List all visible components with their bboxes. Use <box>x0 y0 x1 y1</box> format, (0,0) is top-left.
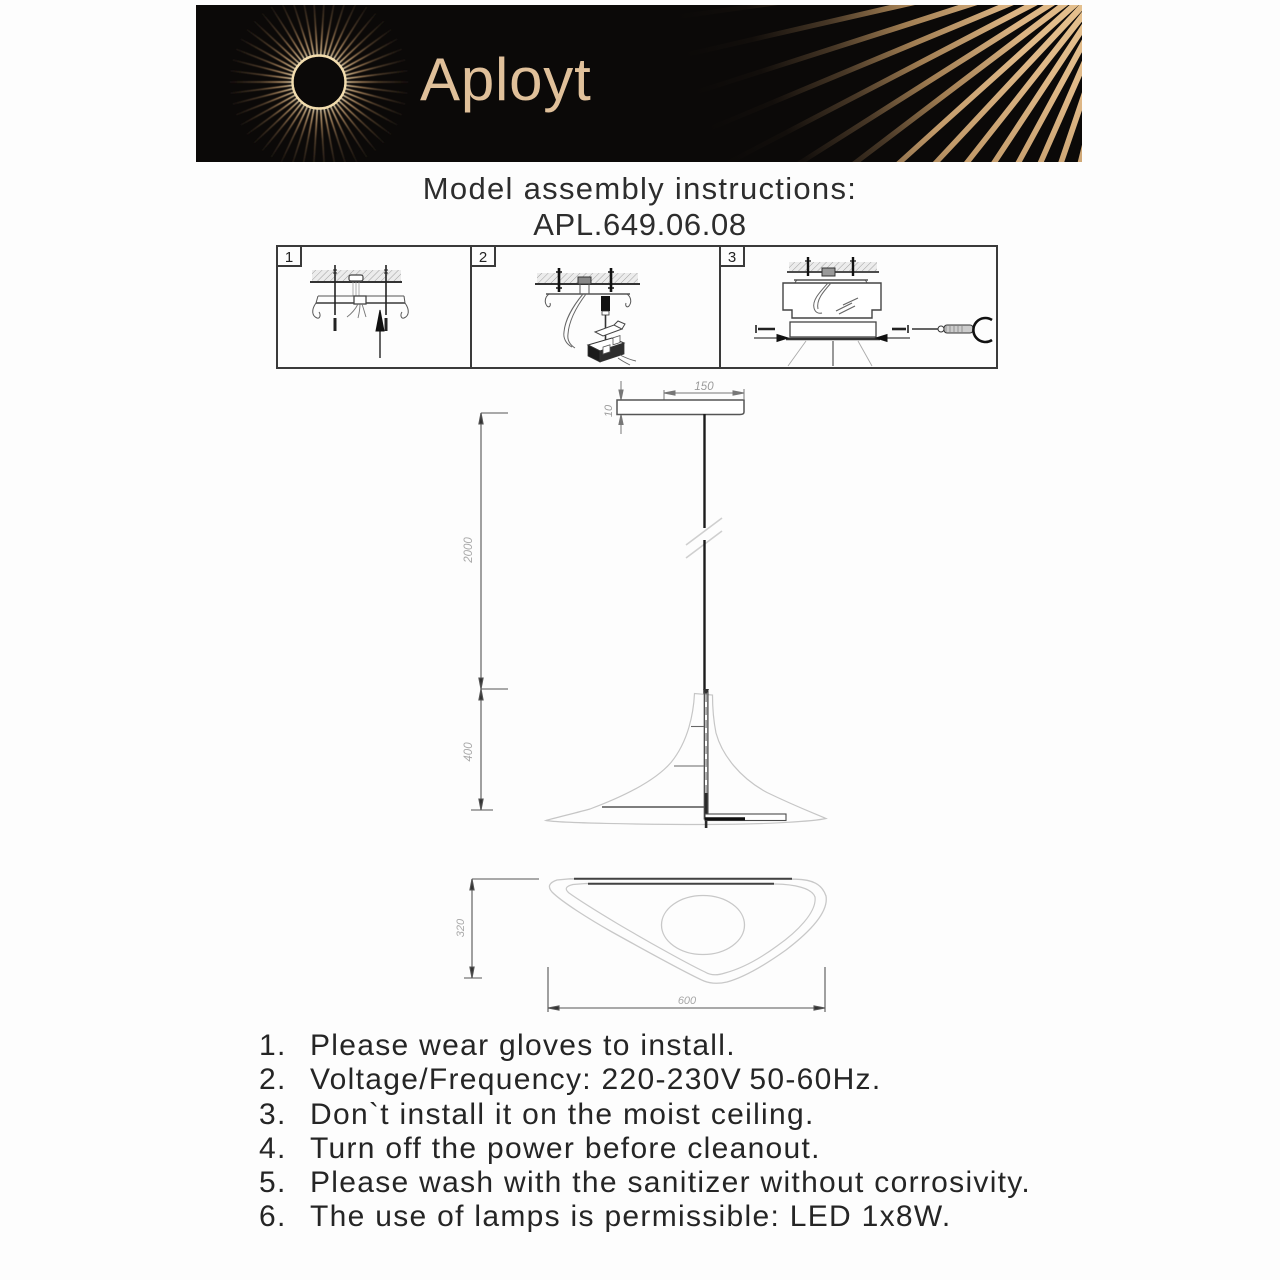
svg-text:1: 1 <box>285 249 293 266</box>
svg-text:400: 400 <box>463 742 475 762</box>
svg-text:10: 10 <box>603 404 615 417</box>
svg-text:2: 2 <box>479 249 487 266</box>
svg-text:3: 3 <box>728 249 736 266</box>
svg-text:600: 600 <box>678 995 697 1007</box>
svg-text:320: 320 <box>455 918 467 937</box>
svg-text:150: 150 <box>694 381 714 393</box>
svg-text:2000: 2000 <box>463 537 475 564</box>
svg-text:Aployt: Aployt <box>420 46 592 113</box>
